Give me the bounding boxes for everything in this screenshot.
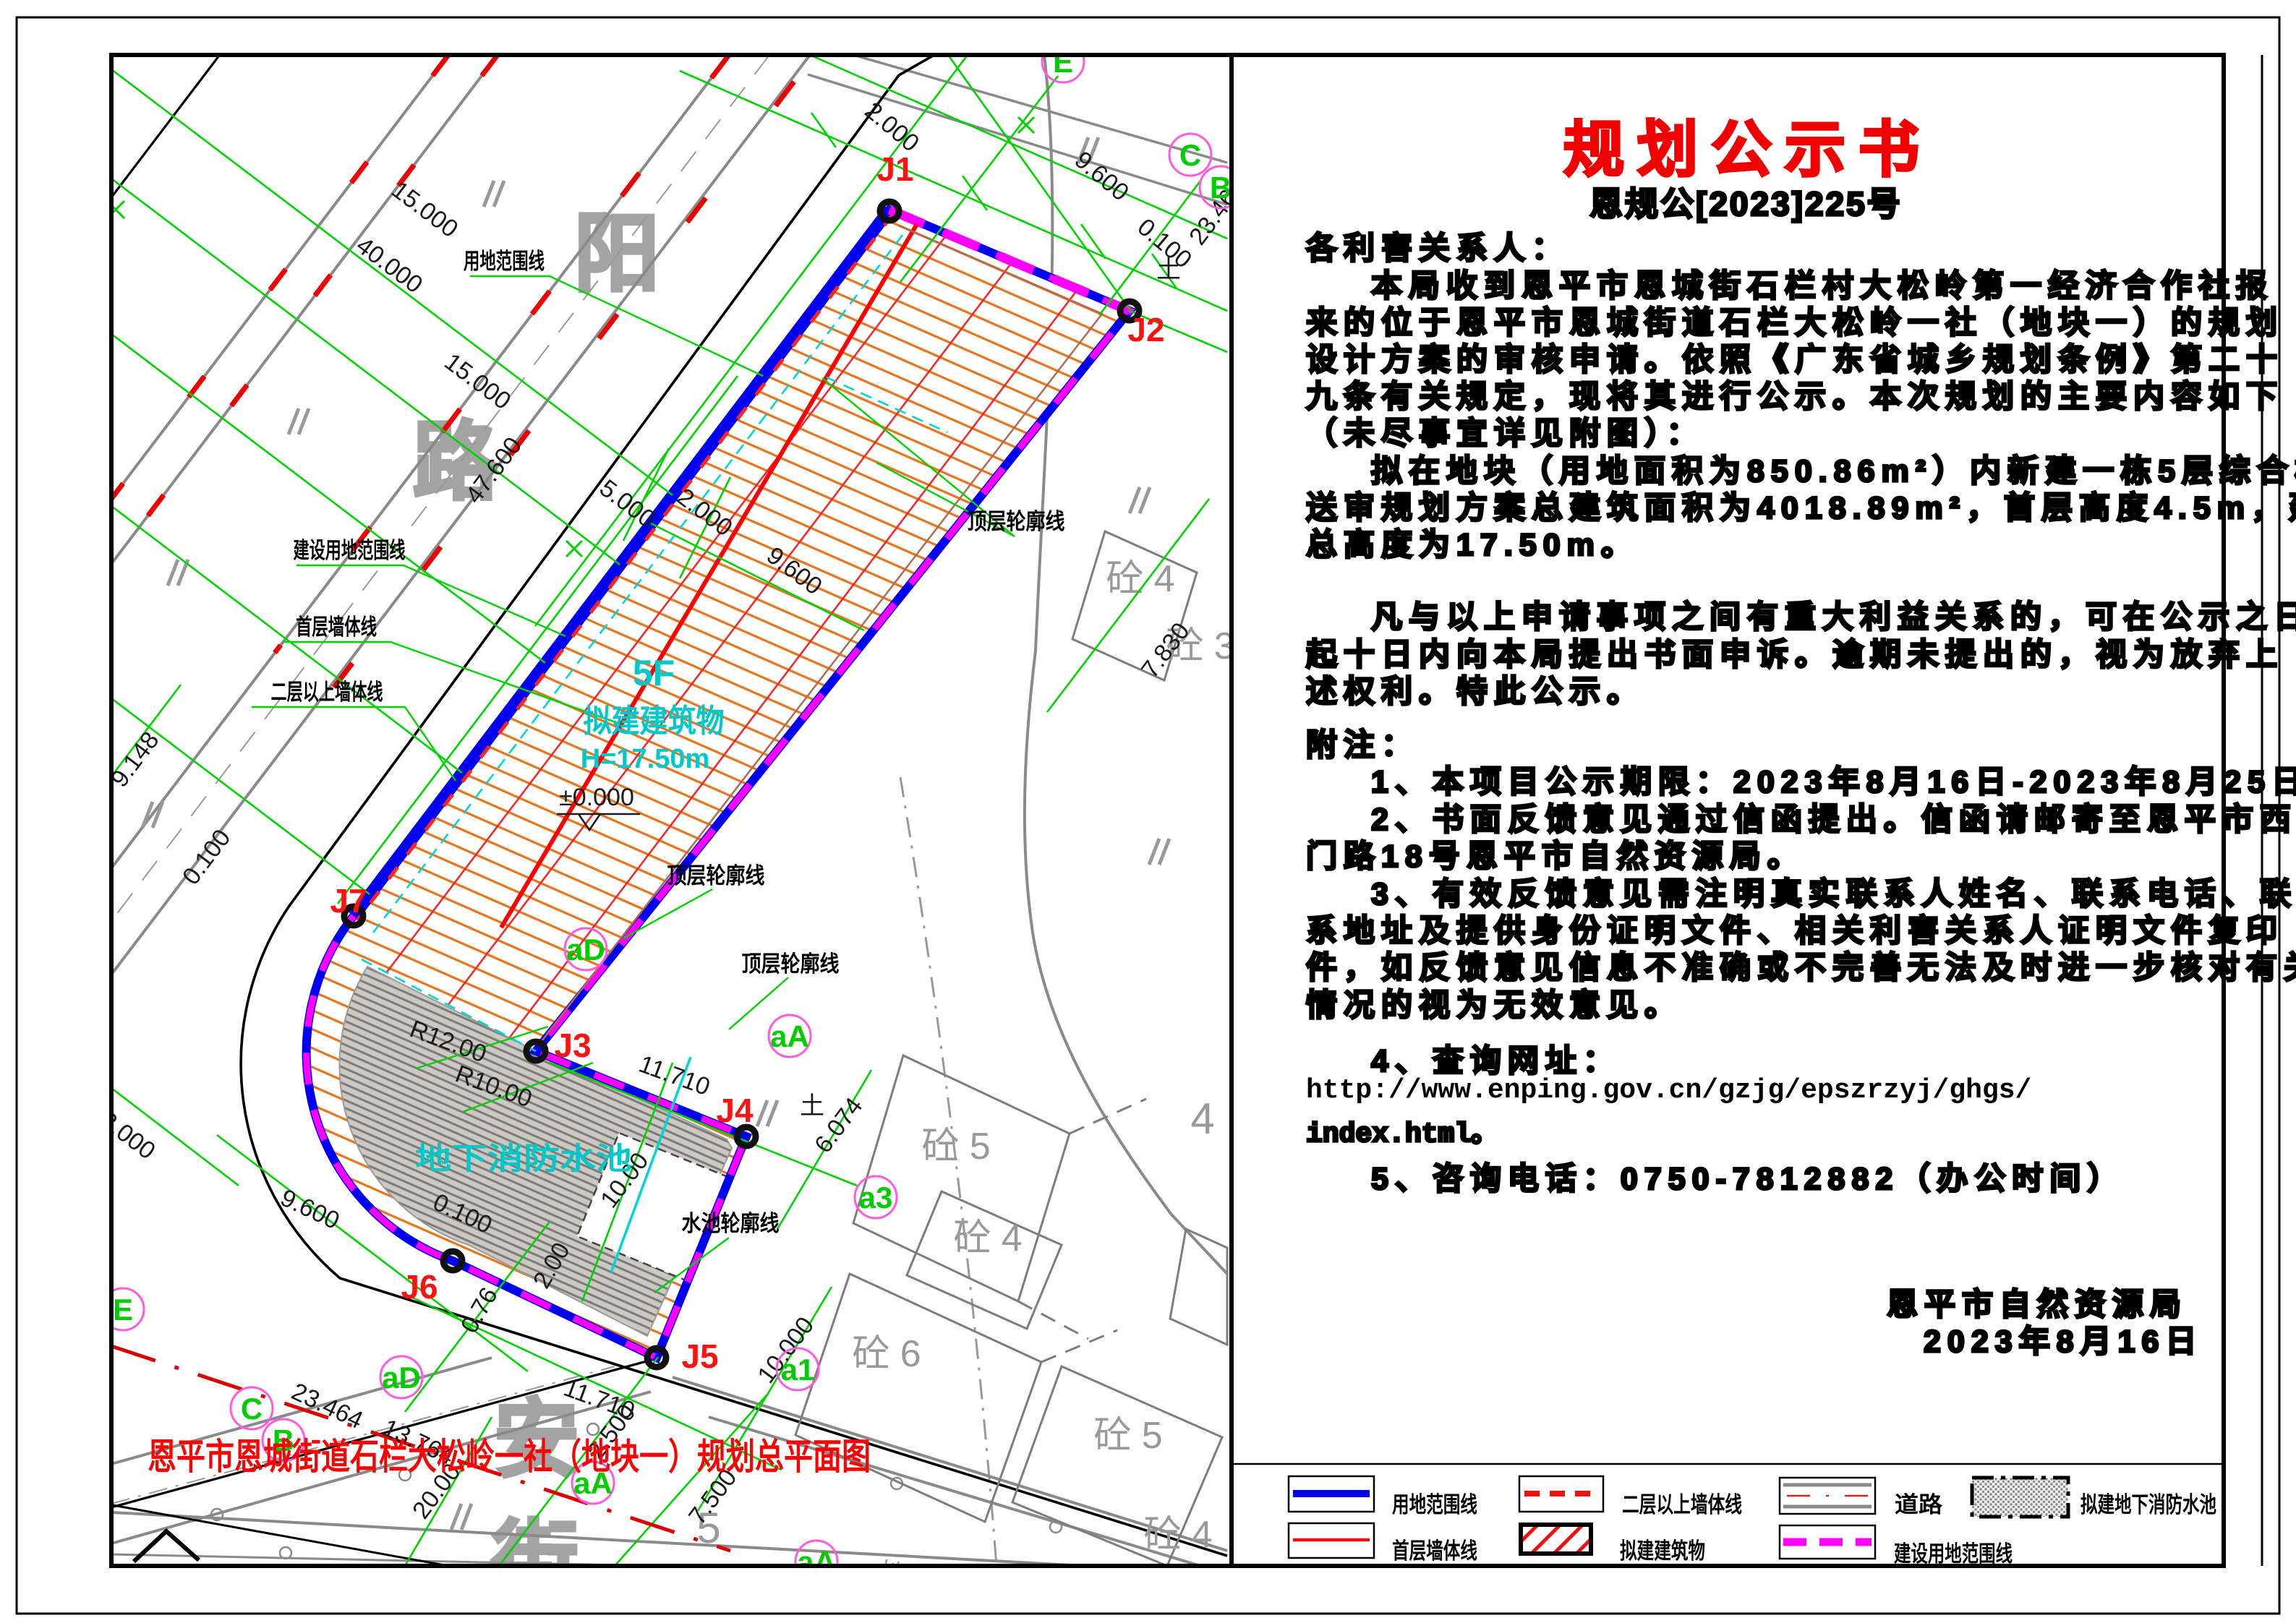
svg-text:a3: a3 [859,1181,893,1215]
svg-text:砼 5: 砼 5 [921,1126,990,1168]
svg-text:拟建建筑物: 拟建建筑物 [584,703,725,739]
svg-text:J1: J1 [876,150,913,188]
svg-text:E: E [113,1293,133,1327]
svg-text:aA: aA [770,1019,809,1053]
svg-text:二层以上墙体线: 二层以上墙体线 [271,680,383,705]
svg-text:0.100: 0.100 [177,824,236,890]
svg-text:首层墙体线: 首层墙体线 [1392,1538,1477,1564]
svg-text:阳: 阳 [574,207,660,302]
svg-text:15.000: 15.000 [439,348,516,415]
svg-text:砼 6: 砼 6 [852,1333,921,1375]
svg-text:C: C [1179,138,1201,172]
svg-text:顶层轮廓线: 顶层轮廓线 [667,863,765,888]
svg-text:4: 4 [1190,1095,1214,1143]
svg-text:9.600: 9.600 [276,1184,343,1235]
svg-text:用地范围线: 用地范围线 [1392,1492,1477,1517]
svg-text:土: 土 [800,1092,824,1120]
svg-text:顶层轮廓线: 顶层轮廓线 [968,509,1065,534]
svg-text:砼 5: 砼 5 [1093,1415,1162,1457]
svg-text:J3: J3 [554,1027,591,1064]
svg-text:地砖: 地砖 [876,1556,933,1596]
svg-text:5F: 5F [633,653,675,693]
svg-text:建设用地范围线: 建设用地范围线 [1894,1541,2013,1567]
svg-text:±0.000: ±0.000 [559,784,634,811]
svg-text:恩平市恩城街道石栏大松岭一社（地块一）规划总平面图: 恩平市恩城街道石栏大松岭一社（地块一）规划总平面图 [148,1436,871,1477]
svg-text:道路: 道路 [1895,1492,1943,1517]
svg-text:a1: a1 [781,1353,815,1387]
svg-text:40.000: 40.000 [351,231,427,299]
svg-text:2.000: 2.000 [860,97,925,158]
svg-text:首层墙体线: 首层墙体线 [296,614,377,640]
svg-text:水池轮廓线: 水池轮廓线 [682,1211,780,1236]
svg-text:2.000: 2.000 [95,1106,161,1165]
svg-text:J2: J2 [1127,311,1164,348]
svg-text:建设用地范围线: 建设用地范围线 [294,538,406,563]
svg-text:15.000: 15.000 [386,176,463,243]
svg-text:aA: aA [797,1545,836,1579]
svg-text:J5: J5 [681,1337,718,1375]
svg-text:9.148: 9.148 [106,727,165,792]
svg-text:9.600: 9.600 [1070,146,1135,207]
svg-text:aD: aD [566,933,605,967]
svg-text:E: E [1053,45,1073,79]
svg-text:J6: J6 [401,1268,438,1306]
svg-text:地下消防水池: 地下消防水池 [415,1142,632,1176]
svg-text:拟建地下消防水池: 拟建地下消防水池 [2081,1492,2216,1517]
svg-text:拟建建筑物: 拟建建筑物 [1620,1538,1705,1564]
svg-text:街: 街 [492,1514,578,1609]
svg-text:J4: J4 [716,1092,754,1129]
svg-text:土: 土 [1156,256,1181,283]
svg-text:砼 4: 砼 4 [1143,1514,1212,1556]
svg-text:用地范围线: 用地范围线 [464,249,545,274]
svg-text:砼 4: 砼 4 [953,1217,1022,1259]
svg-text:C: C [241,1392,263,1426]
svg-text:顶层轮廓线: 顶层轮廓线 [742,951,840,977]
svg-text:B: B [1210,171,1232,205]
svg-text:J7: J7 [330,882,367,920]
svg-text:H=17.50m: H=17.50m [581,744,710,774]
svg-text:二层以上墙体线: 二层以上墙体线 [1622,1492,1742,1517]
svg-text:aD: aD [382,1361,421,1395]
svg-text:砼 4: 砼 4 [1106,558,1174,600]
